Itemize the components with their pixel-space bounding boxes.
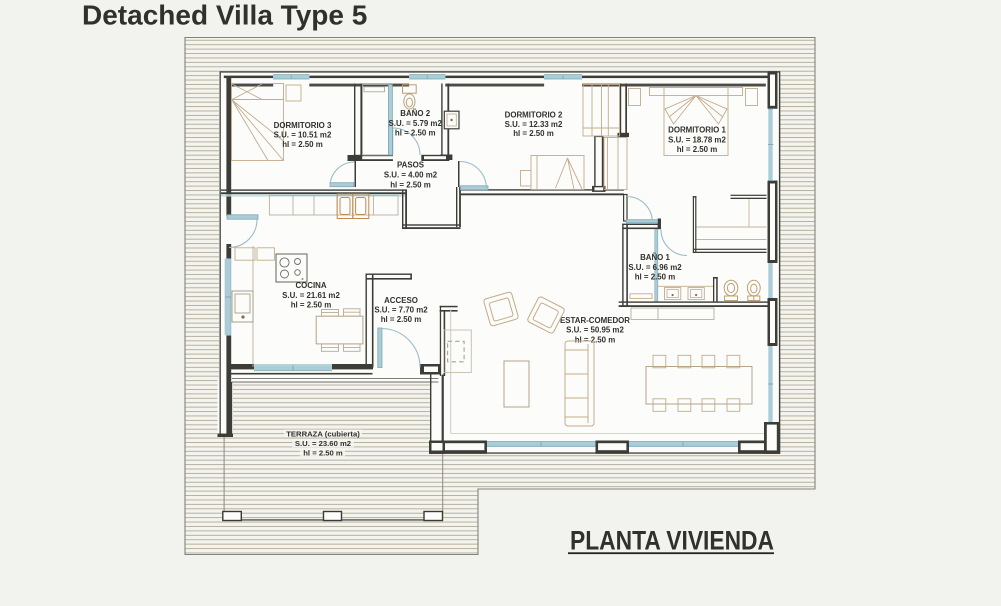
svg-text:DORMITORIO 1: DORMITORIO 1: [668, 125, 726, 134]
svg-text:S.U. = 12.33 m2: S.U. = 12.33 m2: [505, 120, 563, 129]
svg-text:S.U. = 5.79 m2: S.U. = 5.79 m2: [389, 119, 443, 128]
svg-text:DORMITORIO 2: DORMITORIO 2: [505, 110, 563, 119]
svg-text:hl = 2.50 m: hl = 2.50 m: [575, 335, 616, 344]
svg-text:BAÑO 2: BAÑO 2: [400, 109, 430, 118]
svg-text:COCINA: COCINA: [295, 281, 326, 290]
svg-text:hl = 2.50 m: hl = 2.50 m: [291, 300, 332, 309]
svg-text:S.U. = 6.96 m2: S.U. = 6.96 m2: [628, 263, 682, 272]
svg-text:S.U. = 4.00 m2: S.U. = 4.00 m2: [384, 171, 438, 180]
svg-text:hl = 2.50 m: hl = 2.50 m: [635, 272, 676, 281]
svg-text:hl = 2.50 m: hl = 2.50 m: [395, 129, 436, 138]
svg-text:ESTAR-COMEDOR: ESTAR-COMEDOR: [560, 316, 630, 325]
svg-text:PLANTA VIVIENDA: PLANTA VIVIENDA: [570, 526, 774, 556]
svg-text:S.U. = 18.78 m2: S.U. = 18.78 m2: [668, 135, 726, 144]
svg-text:S.U. = 50.95 m2: S.U. = 50.95 m2: [566, 326, 624, 335]
svg-text:S.U. = 21.61 m2: S.U. = 21.61 m2: [282, 291, 340, 300]
svg-text:ACCESO: ACCESO: [384, 296, 418, 305]
svg-text:hl = 2.50 m: hl = 2.50 m: [303, 448, 343, 457]
svg-text:hl = 2.50 m: hl = 2.50 m: [282, 140, 323, 149]
svg-text:hl = 2.50 m: hl = 2.50 m: [677, 145, 718, 154]
svg-text:Detached Villa Type 5: Detached Villa Type 5: [82, 0, 367, 31]
svg-text:BAÑO 1: BAÑO 1: [640, 253, 670, 262]
svg-text:DORMITORIO 3: DORMITORIO 3: [274, 121, 332, 130]
svg-text:hl = 2.50 m: hl = 2.50 m: [390, 180, 431, 189]
svg-text:S.U. = 23.60 m2: S.U. = 23.60 m2: [295, 439, 351, 448]
svg-text:hl = 2.50 m: hl = 2.50 m: [513, 129, 554, 138]
svg-text:TERRAZA (cubierta): TERRAZA (cubierta): [286, 429, 360, 438]
svg-text:PASOS: PASOS: [397, 160, 424, 169]
svg-text:S.U. = 10.51 m2: S.U. = 10.51 m2: [274, 131, 332, 140]
svg-text:S.U. = 7.70 m2: S.U. = 7.70 m2: [374, 306, 428, 315]
svg-text:hl = 2.50 m: hl = 2.50 m: [381, 315, 422, 324]
